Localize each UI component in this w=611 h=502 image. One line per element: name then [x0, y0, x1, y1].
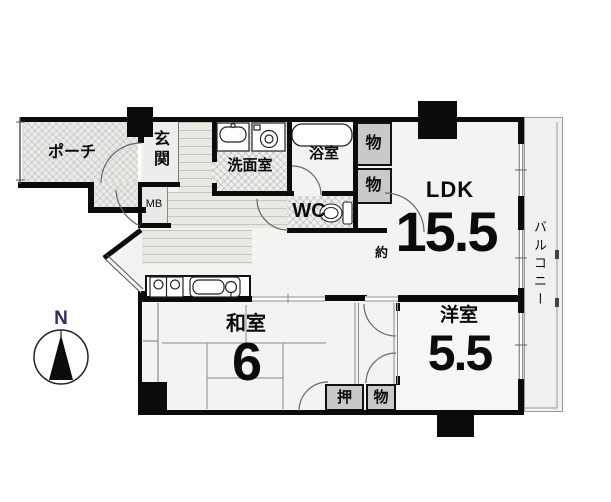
bathtub-icon [292, 124, 352, 146]
washing-machine-panel [254, 125, 260, 130]
vanity-tap [231, 124, 235, 128]
balcony-post [555, 250, 559, 259]
door-arc-corridor-lower [366, 353, 396, 383]
toilet-tank [343, 202, 352, 224]
western-room-size: 5.5 [412, 328, 507, 378]
washroom-label: 洗面室 [216, 158, 284, 173]
kitchen-sink-basin [193, 280, 224, 294]
toilet-label: WC [290, 201, 328, 221]
stove-burner [154, 280, 163, 289]
bathroom-label: 浴室 [301, 146, 347, 161]
door-arc-oshiire [299, 382, 328, 411]
door-arc-corridor-upper [364, 304, 396, 336]
meter-box-label: MB [141, 199, 167, 210]
balcony-post [555, 298, 559, 307]
door-arc-porch [116, 190, 140, 226]
balcony-label: バルコニー [533, 220, 546, 310]
door-arc-toilet [257, 199, 288, 230]
ldk-label: LDK [420, 179, 480, 201]
compass-north-label: N [50, 309, 72, 328]
kitchen-faucet [226, 282, 237, 293]
entrance-label: 玄関 [151, 130, 167, 170]
vanity-basin [220, 127, 246, 142]
bay-floor [104, 230, 141, 293]
porch-label: ポーチ [40, 145, 104, 161]
japanese-room-size: 6 [216, 335, 276, 389]
stove-burner [171, 280, 180, 289]
ldk-size-label: 15.5 [386, 204, 506, 260]
washing-machine-drum-inner [265, 135, 273, 143]
plan-lines-layer [0, 0, 611, 502]
floorplan-canvas: 物 物 押 物 [0, 0, 611, 502]
japanese-room-label: 和室 [216, 314, 276, 334]
western-room-label: 洋室 [428, 306, 490, 325]
door-arc-entrance [101, 143, 141, 183]
door-arc-bathroom [292, 166, 321, 195]
